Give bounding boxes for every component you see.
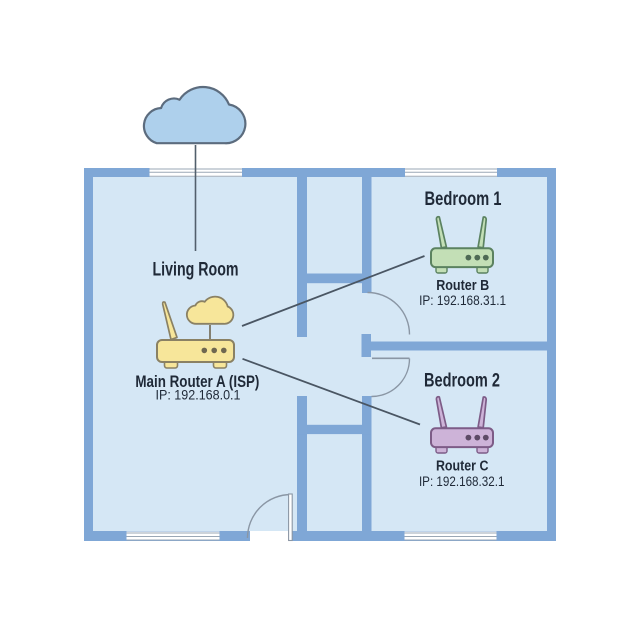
svg-text:IP: 192.168.32.1: IP: 192.168.32.1: [419, 474, 505, 489]
svg-text:Bedroom 2: Bedroom 2: [424, 370, 500, 391]
svg-text:Bedroom 1: Bedroom 1: [425, 189, 502, 210]
svg-text:IP: 192.168.31.1: IP: 192.168.31.1: [419, 293, 506, 308]
svg-text:Router C: Router C: [436, 458, 489, 474]
svg-text:Living Room: Living Room: [153, 259, 239, 280]
svg-text:IP: 192.168.0.1: IP: 192.168.0.1: [156, 388, 241, 403]
svg-text:Router B: Router B: [436, 278, 489, 294]
